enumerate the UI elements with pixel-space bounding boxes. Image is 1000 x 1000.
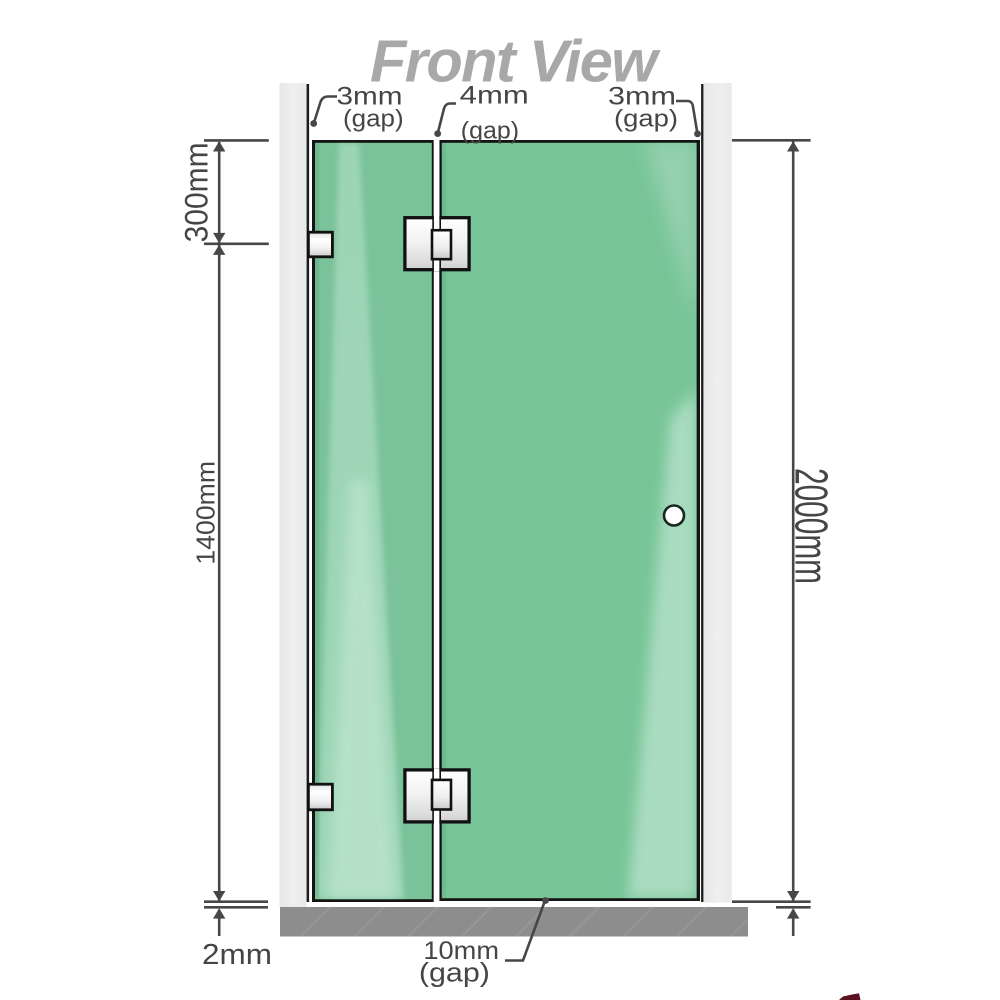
svg-text:1400mm: 1400mm (191, 461, 221, 565)
svg-text:(gap): (gap) (461, 118, 519, 145)
svg-text:300mm: 300mm (179, 142, 215, 242)
svg-text:4mm: 4mm (460, 82, 529, 110)
svg-text:2000mm: 2000mm (786, 468, 838, 584)
svg-text:2mm: 2mm (202, 939, 272, 971)
svg-text:(gap): (gap) (343, 106, 404, 133)
svg-text:(gap): (gap) (419, 958, 490, 988)
svg-text:(gap): (gap) (614, 106, 678, 133)
